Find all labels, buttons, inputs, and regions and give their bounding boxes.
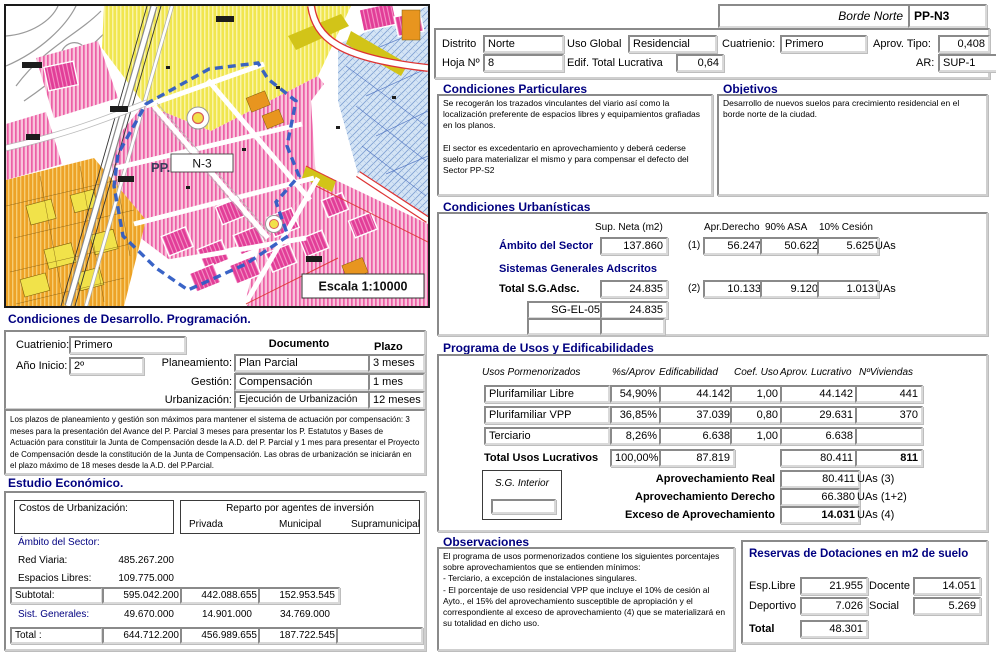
reparto-title: Reparto por agentes de inversión bbox=[181, 503, 419, 514]
urbanizacion-doc-field[interactable]: Ejecución de Urbanización bbox=[234, 391, 371, 409]
sector-name-box: Borde Norte bbox=[718, 4, 911, 28]
documento-header: Documento bbox=[234, 338, 364, 350]
sist-value: 49.670.000 bbox=[94, 609, 177, 620]
exceso-unit: UAs (4) bbox=[857, 509, 894, 521]
planeamiento-doc-field[interactable]: Plan Parcial bbox=[234, 354, 371, 372]
total-label-field: Total : bbox=[10, 627, 103, 644]
scale-box: Escala 1:10000 bbox=[302, 274, 424, 298]
scale-label: Escala 1:10000 bbox=[319, 280, 408, 294]
map-image: PP. N-3 Escala 1:10000 bbox=[6, 6, 428, 306]
ambito-sup-field[interactable]: 137.860 bbox=[600, 237, 668, 255]
edif-field[interactable]: 37.039 bbox=[659, 406, 735, 424]
distrito-label: Distrito bbox=[442, 38, 476, 50]
aprov-derecho-label: Aprovechamiento Derecho bbox=[619, 491, 775, 503]
programa-title: Programa de Usos y Edificabilidades bbox=[443, 341, 654, 355]
gestion-label: Gestión: bbox=[156, 376, 232, 388]
h-viviendas: NºViviendas bbox=[859, 367, 913, 378]
pct-field[interactable]: 54,90% bbox=[610, 385, 662, 403]
sist-municipal-value: 34.769.000 bbox=[262, 609, 333, 620]
ar-field[interactable]: SUP-1 bbox=[938, 54, 996, 72]
urbanizacion-plazo-field[interactable]: 12 meses bbox=[368, 391, 425, 409]
anio-inicio-label: Año Inicio: bbox=[16, 360, 67, 372]
sector-code: PP-N3 bbox=[914, 9, 949, 23]
desarrollo-title: Condiciones de Desarrollo. Programación. bbox=[8, 312, 251, 326]
edif-field[interactable]: 6.638 bbox=[659, 427, 735, 445]
objetivos-panel: Desarrollo de nuevos suelos para crecimi… bbox=[717, 94, 988, 196]
observaciones-panel: El programa de usos pormenorizados conti… bbox=[437, 547, 735, 651]
coef-field[interactable]: 1,00 bbox=[730, 385, 783, 403]
total-sg-uas-label: UAs bbox=[875, 283, 896, 295]
anio-inicio-field[interactable]: 2º bbox=[69, 357, 144, 375]
subtotal-privada-field[interactable]: 442.088.655 bbox=[180, 587, 262, 604]
social-label: Social bbox=[869, 600, 899, 612]
espacios-libres-label: Espacios Libres: bbox=[18, 573, 91, 584]
esp-libre-label: Esp.Libre bbox=[749, 580, 795, 592]
cuatrienio-label: Cuatrienio: bbox=[722, 38, 775, 50]
coef-field[interactable]: 1,00 bbox=[730, 427, 783, 445]
subtotal-municipal-field[interactable]: 152.953.545 bbox=[258, 587, 340, 604]
uso-field[interactable]: Plurifamiliar VPP bbox=[484, 406, 610, 424]
aprov-field[interactable]: 29.631 bbox=[780, 406, 858, 424]
total-field[interactable]: 644.712.200 bbox=[102, 627, 184, 644]
reservas-total-label: Total bbox=[749, 623, 774, 635]
total-edif-field[interactable]: 87.819 bbox=[659, 449, 735, 467]
total-supra-empty-field[interactable] bbox=[336, 627, 423, 644]
uso-global-field[interactable]: Residencial bbox=[628, 35, 717, 53]
col-apr-derecho: Apr.Derecho bbox=[704, 222, 760, 233]
total-sg-label: Total S.G.Adsc. bbox=[499, 283, 579, 295]
aprov-derecho-field[interactable]: 66.380 bbox=[780, 488, 860, 506]
coef-field[interactable]: 0,80 bbox=[730, 406, 783, 424]
uso-field[interactable]: Terciario bbox=[484, 427, 610, 445]
h-aprov: Aprov. Lucrativo bbox=[780, 367, 852, 378]
urbanizacion-label: Urbanización: bbox=[156, 394, 232, 406]
aprov-derecho-unit: UAs (1+2) bbox=[857, 491, 907, 503]
exceso-field[interactable]: 14.031 bbox=[780, 506, 860, 524]
edif-field[interactable]: 0,64 bbox=[676, 54, 724, 72]
sg-interior-box: S.G. Interior bbox=[482, 470, 562, 520]
uso-field[interactable]: Plurifamiliar Libre bbox=[484, 385, 610, 403]
sg-code-field[interactable]: SG-EL-05 bbox=[527, 301, 605, 319]
desarrollo-panel: Cuatrienio: Primero Año Inicio: 2º Docum… bbox=[4, 330, 426, 410]
sg-adscritos-title: Sistemas Generales Adscritos bbox=[499, 263, 657, 275]
col-asa: 90% ASA bbox=[765, 222, 807, 233]
total-sg-apr-field[interactable]: 10.133 bbox=[703, 280, 766, 298]
reservas-total-field[interactable]: 48.301 bbox=[800, 620, 868, 638]
total-viv-field[interactable]: 811 bbox=[855, 449, 923, 467]
aprov-field[interactable]: 6.638 bbox=[780, 427, 858, 445]
total-aprov-field[interactable]: 80.411 bbox=[780, 449, 858, 467]
col-supramunicipal: Supramunicipal bbox=[351, 519, 420, 530]
docente-field[interactable]: 14.051 bbox=[913, 577, 981, 595]
edif-label: Edif. Total Lucrativa bbox=[567, 57, 663, 69]
aprov-real-field[interactable]: 80.411 bbox=[780, 470, 860, 488]
gestion-plazo-field[interactable]: 1 mes bbox=[368, 373, 425, 391]
deportivo-field[interactable]: 7.026 bbox=[800, 597, 868, 615]
subtotal-field[interactable]: 595.042.200 bbox=[102, 587, 184, 604]
costos-box: Costos de Urbanización: bbox=[14, 500, 174, 534]
aprov-field[interactable]: 44.142 bbox=[780, 385, 858, 403]
ambito-ref: (1) bbox=[688, 240, 700, 251]
sector-name: Borde Norte bbox=[838, 9, 903, 23]
estudio-ambito-label: Ámbito del Sector: bbox=[18, 537, 100, 548]
objetivos-text: Desarrollo de nuevos suelos para crecimi… bbox=[723, 98, 981, 120]
pct-field[interactable]: 8,26% bbox=[610, 427, 662, 445]
total-sg-ref: (2) bbox=[688, 283, 700, 294]
sg-value-empty-field[interactable] bbox=[600, 318, 665, 335]
social-field[interactable]: 5.269 bbox=[913, 597, 981, 615]
total-privada-field[interactable]: 456.989.655 bbox=[180, 627, 262, 644]
sector-code-box: PP-N3 bbox=[908, 4, 987, 28]
aprov-tipo-label: Aprov. Tipo: bbox=[873, 38, 931, 50]
reparto-box: Reparto por agentes de inversión Privada… bbox=[180, 500, 420, 534]
uso-global-label: Uso Global bbox=[567, 38, 621, 50]
edif-field[interactable]: 44.142 bbox=[659, 385, 735, 403]
desarrollo-cuatrienio-label: Cuatrienio: bbox=[16, 339, 69, 351]
header-fields-panel: Distrito Norte Uso Global Residencial Cu… bbox=[434, 28, 990, 79]
sg-value-field[interactable]: 24.835 bbox=[600, 301, 668, 319]
observaciones-text: El programa de usos pormenorizados conti… bbox=[443, 551, 727, 630]
particulares-panel: Se recogerán los trazados vinculantes de… bbox=[437, 94, 713, 196]
espacios-libres-value: 109.775.000 bbox=[94, 573, 177, 584]
urbanisticas-panel: Sup. Neta (m2) Apr.Derecho 90% ASA 10% C… bbox=[437, 212, 988, 336]
sg-code-empty-field[interactable] bbox=[527, 318, 602, 335]
pct-field[interactable]: 36,85% bbox=[610, 406, 662, 424]
planeamiento-label: Planeamiento: bbox=[156, 357, 232, 369]
desarrollo-note-panel: Los plazos de planeamiento y gestión son… bbox=[4, 409, 426, 475]
deportivo-label: Deportivo bbox=[749, 600, 796, 612]
estudio-panel: Costos de Urbanización: Reparto por agen… bbox=[4, 491, 426, 651]
sist-generales-label: Sist. Generales: bbox=[18, 609, 89, 620]
h-usos: Usos Pormenorizados bbox=[482, 367, 580, 378]
total-sg-sup-field[interactable]: 24.835 bbox=[600, 280, 668, 298]
ambito-asa-field[interactable]: 50.622 bbox=[760, 237, 823, 255]
ar-label: AR: bbox=[916, 57, 934, 69]
docente-label: Docente bbox=[869, 580, 910, 592]
desarrollo-note: Los plazos de planeamiento y gestión son… bbox=[10, 414, 420, 472]
esp-libre-field[interactable]: 21.955 bbox=[800, 577, 868, 595]
programa-panel: Usos Pormenorizados %s/Aprov Edificabili… bbox=[437, 354, 988, 532]
estudio-title: Estudio Económico. bbox=[8, 476, 123, 490]
red-viaria-label: Red Viaria: bbox=[18, 555, 67, 566]
desarrollo-cuatrienio-field[interactable]: Primero bbox=[69, 336, 186, 354]
red-viaria-value: 485.267.200 bbox=[94, 555, 177, 566]
viv-field[interactable]: 370 bbox=[855, 406, 923, 424]
total-municipal-field[interactable]: 187.722.545 bbox=[258, 627, 340, 644]
cuatrienio-field[interactable]: Primero bbox=[780, 35, 867, 53]
h-coef: Coef. Uso bbox=[734, 367, 778, 378]
costos-label: Costos de Urbanización: bbox=[19, 503, 128, 514]
particulares-text: Se recogerán los trazados vinculantes de… bbox=[443, 98, 705, 177]
map-pp-prefix: PP. bbox=[151, 160, 170, 175]
total-pct-field[interactable]: 100,00% bbox=[610, 449, 662, 467]
ambito-uas-label: UAs bbox=[875, 240, 896, 252]
sector-label-box: N-3 bbox=[171, 154, 233, 172]
total-sg-asa-field[interactable]: 9.120 bbox=[760, 280, 823, 298]
col-sup-neta: Sup. Neta (m2) bbox=[595, 222, 663, 233]
gestion-doc-field[interactable]: Compensación bbox=[234, 373, 371, 391]
viv-field[interactable] bbox=[855, 427, 923, 445]
planeamiento-plazo-field[interactable]: 3 meses bbox=[368, 354, 425, 372]
sector-label: N-3 bbox=[192, 157, 212, 171]
reservas-title: Reservas de Dotaciones en m2 de suelo bbox=[749, 548, 968, 560]
ambito-cesion-field[interactable]: 5.625 bbox=[817, 237, 879, 255]
exceso-label: Exceso de Aprovechamiento bbox=[619, 509, 775, 521]
total-sg-cesion-field[interactable]: 1.013 bbox=[817, 280, 879, 298]
sg-interior-field[interactable] bbox=[491, 499, 556, 514]
viv-field[interactable]: 441 bbox=[855, 385, 923, 403]
subtotal-label-field: Subtotal: bbox=[10, 587, 103, 604]
h-pct: %s/Aprov bbox=[612, 367, 655, 378]
distrito-field[interactable]: Norte bbox=[483, 35, 564, 53]
hoja-field[interactable]: 8 bbox=[483, 54, 564, 72]
col-privada: Privada bbox=[189, 519, 223, 530]
aprov-real-label: Aprovechamiento Real bbox=[619, 473, 775, 485]
aprov-real-unit: UAs (3) bbox=[857, 473, 894, 485]
h-edificabilidad: Edificabilidad bbox=[659, 367, 718, 378]
aprov-tipo-field[interactable]: 0,408 bbox=[938, 35, 990, 53]
total-usos-label: Total Usos Lucrativos bbox=[484, 452, 598, 464]
col-cesion: 10% Cesión bbox=[819, 222, 873, 233]
col-municipal: Municipal bbox=[279, 519, 321, 530]
zoning-map: PP. N-3 Escala 1:10000 bbox=[4, 4, 430, 308]
sist-privada-value: 14.901.000 bbox=[184, 609, 255, 620]
plazo-header: Plazo bbox=[374, 341, 403, 353]
ambito-sector-label: Ámbito del Sector bbox=[499, 240, 593, 252]
reservas-panel: Reservas de Dotaciones en m2 de suelo Es… bbox=[741, 540, 988, 644]
sg-interior-label: S.G. Interior bbox=[483, 478, 561, 489]
hoja-label: Hoja Nº bbox=[442, 57, 480, 69]
ambito-apr-field[interactable]: 56.247 bbox=[703, 237, 766, 255]
